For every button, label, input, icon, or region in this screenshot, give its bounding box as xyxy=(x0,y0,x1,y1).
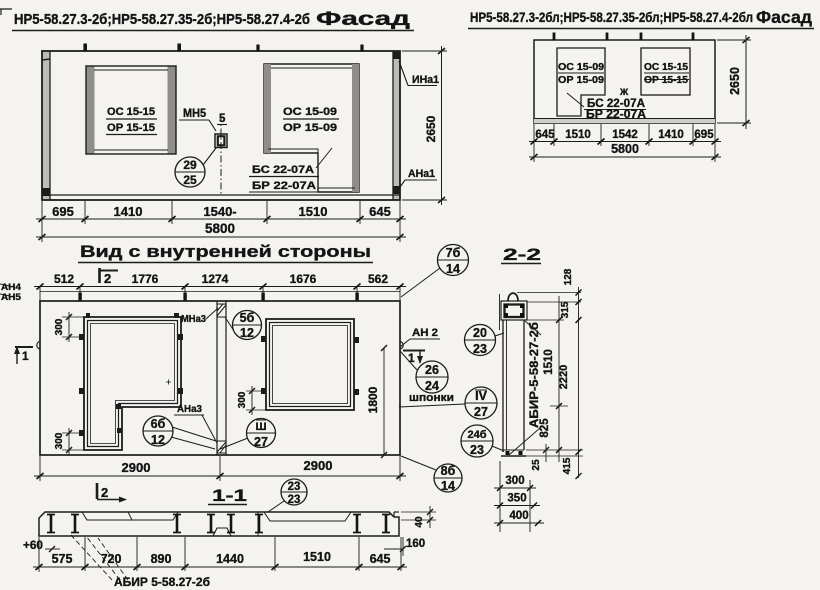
svg-text:2: 2 xyxy=(101,485,108,500)
svg-text:2-2: 2-2 xyxy=(503,245,541,264)
svg-text:695: 695 xyxy=(52,204,74,219)
svg-text:ОС 15-15: ОС 15-15 xyxy=(107,106,155,118)
svg-text:1410: 1410 xyxy=(658,129,684,141)
svg-text:АБИР-5-58-27-2б: АБИР-5-58-27-2б xyxy=(529,322,541,428)
svg-text:2: 2 xyxy=(104,271,111,286)
svg-text:400: 400 xyxy=(509,510,528,522)
svg-text:1510: 1510 xyxy=(543,349,555,375)
svg-text:НР5-58.27.3-2бл;НР5-58.27.35-2: НР5-58.27.3-2бл;НР5-58.27.35-2бл;НР5-58.… xyxy=(470,10,753,25)
svg-text:825: 825 xyxy=(539,418,551,438)
svg-text:1440: 1440 xyxy=(216,552,244,566)
svg-text:12: 12 xyxy=(240,326,254,340)
svg-text:АН5: АН5 xyxy=(1,292,21,302)
svg-text:575: 575 xyxy=(52,552,73,566)
svg-text:АН4: АН4 xyxy=(1,282,21,292)
svg-text:5: 5 xyxy=(219,113,226,125)
svg-text:1776: 1776 xyxy=(132,272,159,286)
svg-text:23: 23 xyxy=(288,494,301,506)
svg-text:300: 300 xyxy=(54,318,65,335)
svg-text:АН 2: АН 2 xyxy=(412,327,438,339)
svg-text:ОС 15-09: ОС 15-09 xyxy=(283,106,337,118)
svg-text:2650: 2650 xyxy=(728,67,742,95)
svg-text:23: 23 xyxy=(288,481,301,493)
svg-text:23: 23 xyxy=(473,342,487,356)
svg-text:Фасад: Фасад xyxy=(316,9,410,30)
svg-text:1800: 1800 xyxy=(366,386,380,413)
svg-text:5б: 5б xyxy=(240,311,255,325)
svg-text:24б: 24б xyxy=(467,429,486,441)
svg-text:890: 890 xyxy=(151,552,172,566)
svg-text:5800: 5800 xyxy=(611,142,639,156)
svg-text:1540-: 1540- xyxy=(203,204,236,219)
svg-text:2220: 2220 xyxy=(558,365,570,389)
svg-text:1-1: 1-1 xyxy=(212,486,247,505)
svg-text:НР5-58.27.3-2б;НР5-58.27.35-2б: НР5-58.27.3-2б;НР5-58.27.35-2б;НР5-58.27… xyxy=(14,11,310,28)
svg-text:695: 695 xyxy=(694,129,714,141)
svg-text:ОР 15-15: ОР 15-15 xyxy=(107,122,155,134)
svg-text:25: 25 xyxy=(183,173,197,187)
svg-text:1: 1 xyxy=(408,351,415,365)
svg-text:12: 12 xyxy=(151,433,165,447)
svg-text:IV: IV xyxy=(475,389,487,403)
svg-text:ОС 15-15: ОС 15-15 xyxy=(644,62,688,73)
svg-text:645: 645 xyxy=(370,552,391,566)
svg-text:1: 1 xyxy=(22,349,29,363)
svg-text:512: 512 xyxy=(54,272,74,286)
svg-text:Вид с внутренней стороны: Вид с внутренней стороны xyxy=(80,243,371,261)
svg-text:8б: 8б xyxy=(441,464,456,478)
svg-text:23: 23 xyxy=(470,443,484,457)
svg-text:14: 14 xyxy=(441,479,455,493)
svg-text:Фасад: Фасад xyxy=(756,7,812,27)
svg-text:ОР 15-15: ОР 15-15 xyxy=(644,75,688,86)
svg-text:АНа3: АНа3 xyxy=(177,404,202,415)
svg-text:1510: 1510 xyxy=(565,129,591,141)
svg-text:1542: 1542 xyxy=(612,129,638,141)
svg-text:ОР 15-09: ОР 15-09 xyxy=(558,75,604,86)
svg-text:645: 645 xyxy=(369,204,391,219)
svg-text:1510: 1510 xyxy=(303,550,331,564)
svg-text:300: 300 xyxy=(54,432,65,449)
svg-text:300: 300 xyxy=(237,391,248,408)
svg-text:645: 645 xyxy=(535,129,555,141)
svg-text:1410: 1410 xyxy=(114,204,143,219)
svg-text:2900: 2900 xyxy=(304,458,333,473)
svg-text:26: 26 xyxy=(425,363,439,377)
svg-text:МНа3: МНа3 xyxy=(181,314,206,325)
svg-text:20: 20 xyxy=(473,326,487,340)
svg-text:ОС 15-09: ОС 15-09 xyxy=(558,62,604,73)
svg-text:БР 22-07А: БР 22-07А xyxy=(586,109,646,121)
svg-text:415: 415 xyxy=(562,457,573,474)
svg-text:160: 160 xyxy=(406,538,425,550)
svg-text:БС 22-07А: БС 22-07А xyxy=(252,164,314,176)
svg-text:1274: 1274 xyxy=(202,272,229,286)
svg-text:1510: 1510 xyxy=(299,204,328,219)
svg-text:ИНа1: ИНа1 xyxy=(412,74,439,86)
svg-text:27: 27 xyxy=(254,435,268,449)
svg-text:29: 29 xyxy=(183,158,197,172)
svg-text:2900: 2900 xyxy=(122,460,151,475)
svg-text:27: 27 xyxy=(474,405,488,419)
svg-text:Ж: Ж xyxy=(619,87,629,97)
svg-text:2650: 2650 xyxy=(424,115,438,142)
svg-text:шпонки: шпонки xyxy=(409,392,454,404)
svg-text:АБИР 5-58.27-2б: АБИР 5-58.27-2б xyxy=(114,575,210,589)
svg-text:25: 25 xyxy=(531,459,542,471)
svg-text:562: 562 xyxy=(368,272,388,286)
svg-text:МН5: МН5 xyxy=(183,108,207,120)
svg-text:БР 22-07А: БР 22-07А xyxy=(252,180,316,192)
svg-text:5800: 5800 xyxy=(205,221,235,236)
svg-text:315: 315 xyxy=(560,301,571,318)
svg-text:128: 128 xyxy=(563,268,574,285)
svg-text:40: 40 xyxy=(414,516,425,528)
svg-text:ОР 15-09: ОР 15-09 xyxy=(283,122,337,134)
svg-text:24: 24 xyxy=(425,379,439,393)
svg-text:6б: 6б xyxy=(151,417,166,431)
svg-text:14: 14 xyxy=(446,262,460,276)
svg-text:300: 300 xyxy=(505,475,524,487)
svg-text:Ш: Ш xyxy=(255,421,266,433)
svg-text:7б: 7б xyxy=(446,246,461,260)
svg-text:АНа1: АНа1 xyxy=(408,168,435,180)
svg-text:+60: +60 xyxy=(23,540,43,552)
svg-text:1676: 1676 xyxy=(290,272,317,286)
svg-text:350: 350 xyxy=(507,493,526,505)
